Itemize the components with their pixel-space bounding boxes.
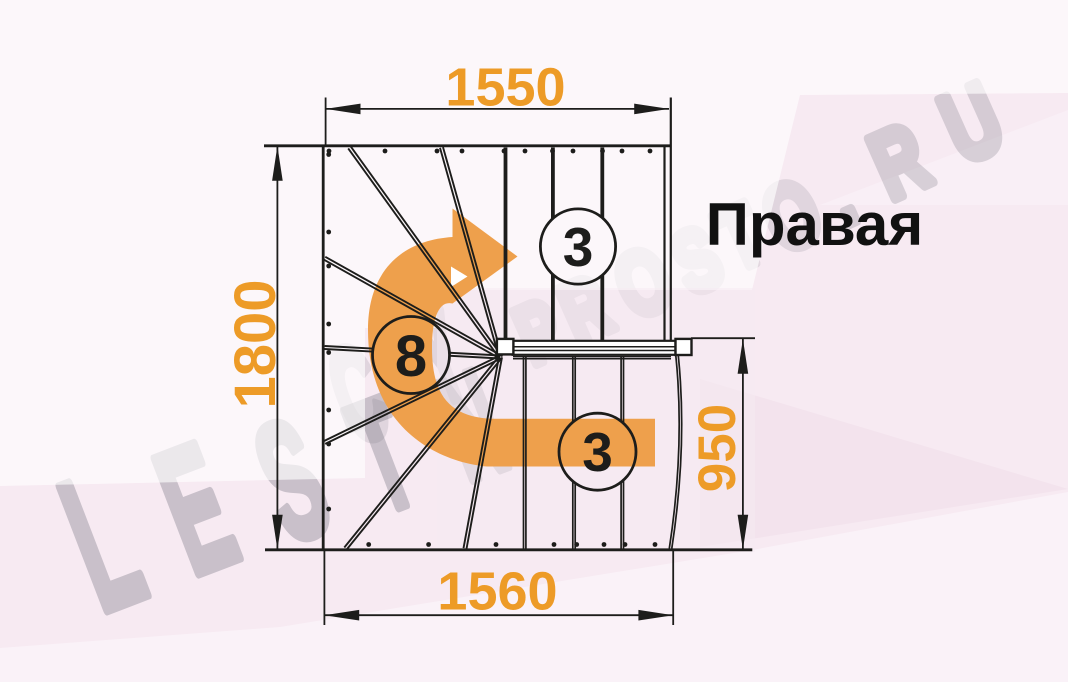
svg-text:1550: 1550 xyxy=(445,58,565,118)
svg-text:3: 3 xyxy=(563,216,594,278)
svg-text:Правая: Правая xyxy=(706,191,924,258)
svg-text:1560: 1560 xyxy=(437,562,557,622)
svg-text:8: 8 xyxy=(395,324,427,389)
svg-text:1800: 1800 xyxy=(223,279,288,408)
svg-text:3: 3 xyxy=(582,421,613,483)
svg-text:950: 950 xyxy=(688,404,747,492)
